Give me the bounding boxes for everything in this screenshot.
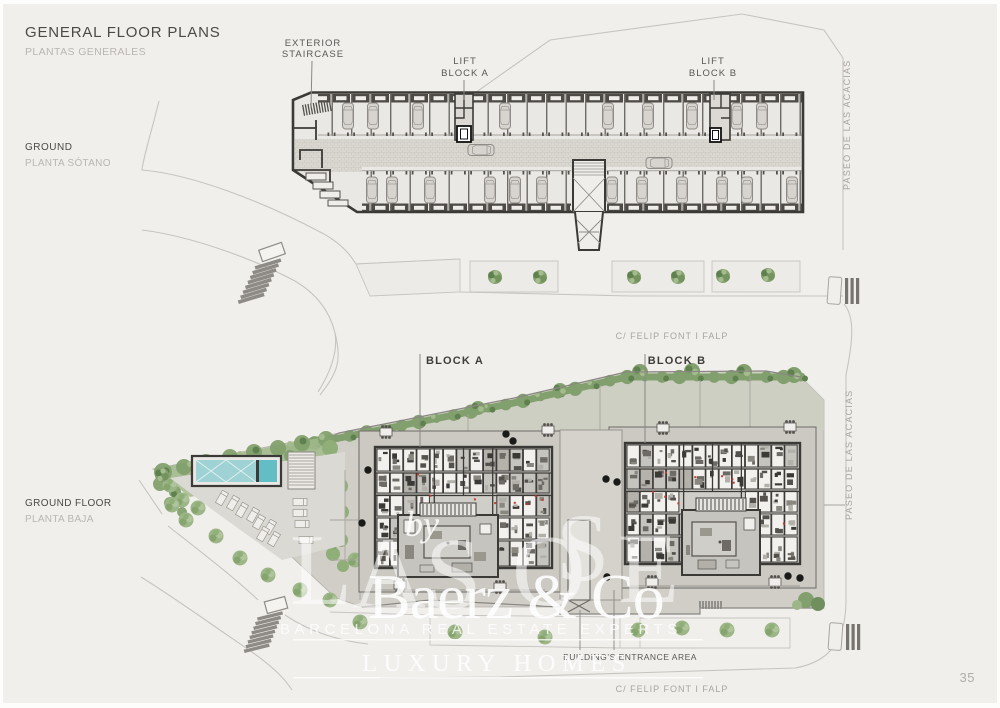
svg-text:LIFT: LIFT [701, 56, 725, 67]
svg-text:GROUND: GROUND [25, 142, 72, 153]
svg-text:BLOCK A: BLOCK A [441, 68, 489, 79]
svg-text:EXTERIOR: EXTERIOR [285, 38, 342, 49]
svg-text:C/ FELIP FONT I FALP: C/ FELIP FONT I FALP [616, 331, 729, 341]
svg-text:PLANTAS GENERALES: PLANTAS GENERALES [25, 46, 146, 58]
svg-text:LIFT: LIFT [453, 56, 477, 67]
svg-text:35: 35 [960, 670, 975, 685]
svg-text:by: by [405, 504, 439, 544]
svg-text:PASEO DE LAS ACACIAS: PASEO DE LAS ACACIAS [844, 390, 854, 520]
svg-text:PLANTA BAJA: PLANTA BAJA [25, 514, 94, 525]
svg-text:BARCELONA REAL ESTATE EXPERTS: BARCELONA REAL ESTATE EXPERTS [280, 621, 682, 638]
svg-text:BLOCK B: BLOCK B [689, 68, 737, 79]
svg-text:PASEO DE LAS ACACIAS: PASEO DE LAS ACACIAS [842, 60, 852, 190]
svg-text:BLOCK A: BLOCK A [426, 355, 484, 367]
svg-text:C/ FELIP FONT I FALP: C/ FELIP FONT I FALP [616, 684, 729, 694]
svg-text:GROUND FLOOR: GROUND FLOOR [25, 498, 111, 509]
svg-text:BLOCK B: BLOCK B [648, 355, 707, 367]
svg-text:GENERAL FLOOR PLANS: GENERAL FLOOR PLANS [25, 24, 221, 41]
svg-text:PLANTA SÓTANO: PLANTA SÓTANO [25, 156, 111, 169]
svg-text:L: L [290, 514, 352, 627]
svg-text:LUXURY HOMES: LUXURY HOMES [362, 650, 632, 677]
svg-text:STAIRCASE: STAIRCASE [282, 49, 344, 60]
